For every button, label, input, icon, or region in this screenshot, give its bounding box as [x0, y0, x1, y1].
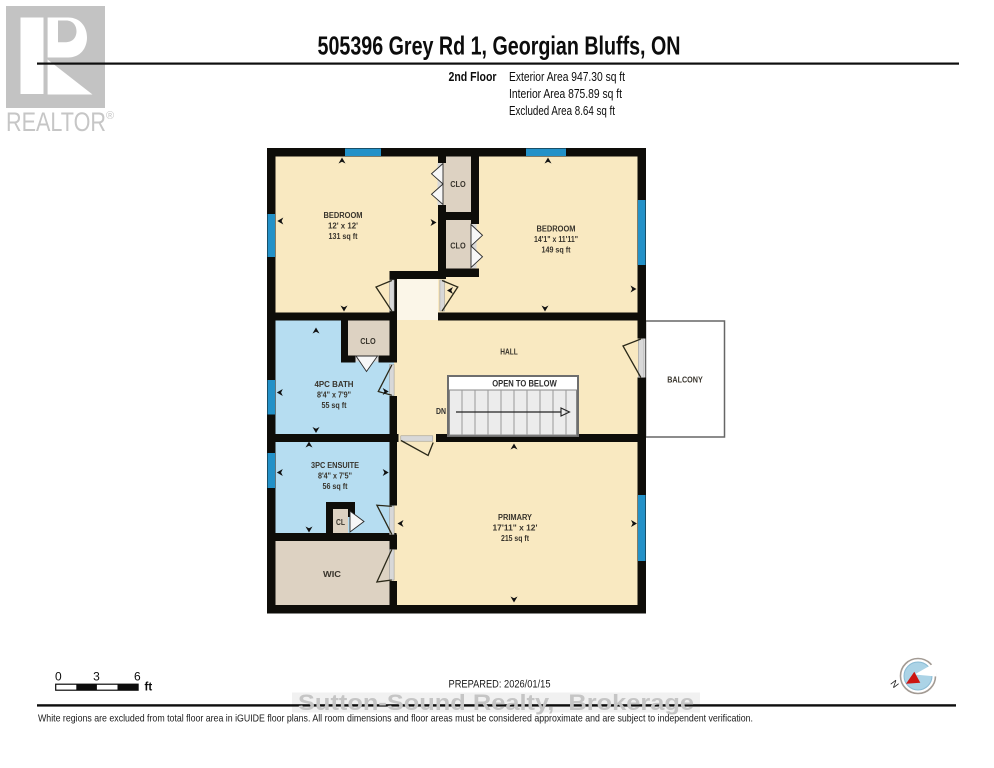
svg-text:PREPARED: 2026/01/15: PREPARED: 2026/01/15	[449, 679, 551, 691]
svg-text:PRIMARY: PRIMARY	[498, 512, 532, 522]
svg-text:149 sq ft: 149 sq ft	[542, 245, 571, 255]
svg-text:2nd Floor: 2nd Floor	[449, 70, 497, 84]
svg-text:CLO: CLO	[360, 336, 376, 346]
svg-text:3PC ENSUITE: 3PC ENSUITE	[311, 460, 359, 470]
svg-text:REALTOR: REALTOR	[6, 107, 106, 137]
svg-text:CLO: CLO	[450, 241, 466, 251]
svg-text:®: ®	[106, 110, 114, 122]
svg-text:ft: ft	[145, 682, 153, 694]
svg-text:3: 3	[93, 670, 100, 684]
svg-text:BEDROOM: BEDROOM	[324, 210, 363, 220]
svg-text:BEDROOM: BEDROOM	[537, 224, 576, 234]
svg-text:CL: CL	[336, 518, 345, 527]
svg-text:17'11" x 12': 17'11" x 12'	[493, 523, 538, 533]
svg-text:505396 Grey Rd 1, Georgian Blu: 505396 Grey Rd 1, Georgian Bluffs, ON	[318, 31, 681, 61]
svg-text:HALL: HALL	[500, 347, 518, 357]
svg-text:12' x 12': 12' x 12'	[328, 221, 358, 231]
svg-text:56 sq ft: 56 sq ft	[323, 481, 348, 491]
svg-text:Excluded Area 8.64 sq ft: Excluded Area 8.64 sq ft	[509, 104, 615, 118]
svg-text:55 sq ft: 55 sq ft	[322, 400, 347, 410]
svg-text:Exterior Area 947.30 sq ft: Exterior Area 947.30 sq ft	[509, 70, 625, 84]
svg-text:WIC: WIC	[323, 569, 341, 579]
svg-text:BALCONY: BALCONY	[667, 375, 703, 385]
svg-text:Interior Area 875.89 sq ft: Interior Area 875.89 sq ft	[509, 87, 622, 101]
svg-text:White regions are excluded fro: White regions are excluded from total fl…	[38, 714, 753, 725]
svg-text:Sutton-Sound Realty, Brokerag: Sutton-Sound Realty, Brokerage	[298, 690, 694, 715]
svg-text:8'4" x 7'5": 8'4" x 7'5"	[318, 471, 352, 481]
svg-text:131 sq ft: 131 sq ft	[329, 231, 358, 241]
svg-text:0: 0	[55, 670, 62, 684]
svg-text:215 sq ft: 215 sq ft	[501, 533, 529, 543]
svg-text:14'1" x 11'11": 14'1" x 11'11"	[534, 234, 578, 244]
svg-text:OPEN TO BELOW: OPEN TO BELOW	[492, 379, 557, 389]
svg-text:8'4" x 7'9": 8'4" x 7'9"	[317, 390, 351, 400]
svg-text:CLO: CLO	[450, 179, 466, 189]
svg-text:4PC BATH: 4PC BATH	[315, 379, 354, 389]
svg-text:6: 6	[134, 670, 141, 684]
svg-text:DN: DN	[436, 407, 446, 416]
